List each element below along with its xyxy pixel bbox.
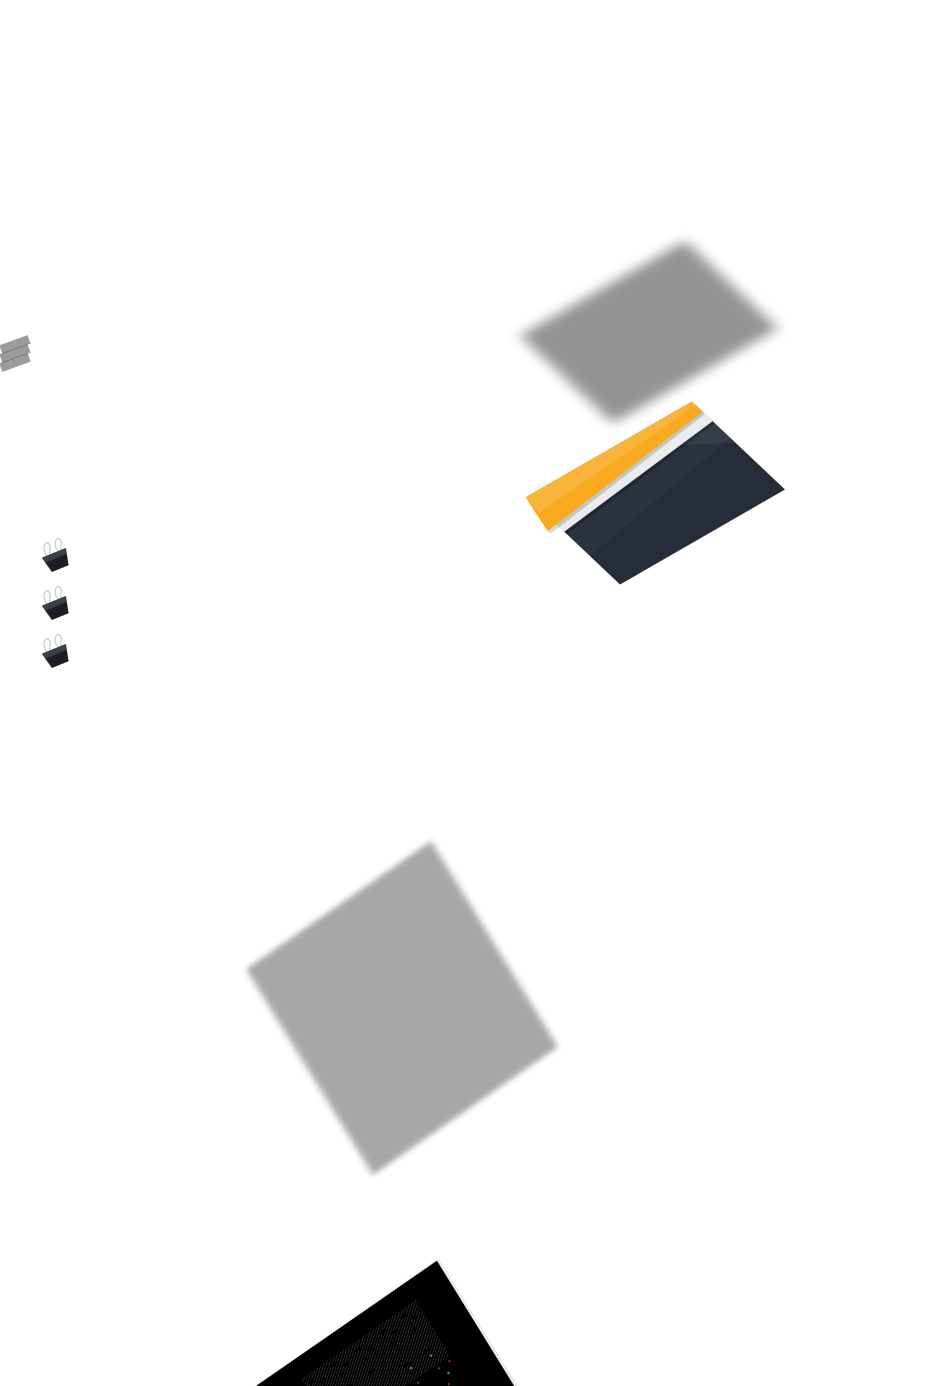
mockup-scene: ФЕБ-00277-2-ЭМ (0, 0, 925, 1386)
binder-clip (25, 195, 901, 586)
sheet2-shadow (246, 841, 558, 1175)
floor-plan-sheet-2: ФЕБ-00277-2-ЭМ (253, 1257, 565, 1386)
binder-clip (25, 243, 901, 634)
